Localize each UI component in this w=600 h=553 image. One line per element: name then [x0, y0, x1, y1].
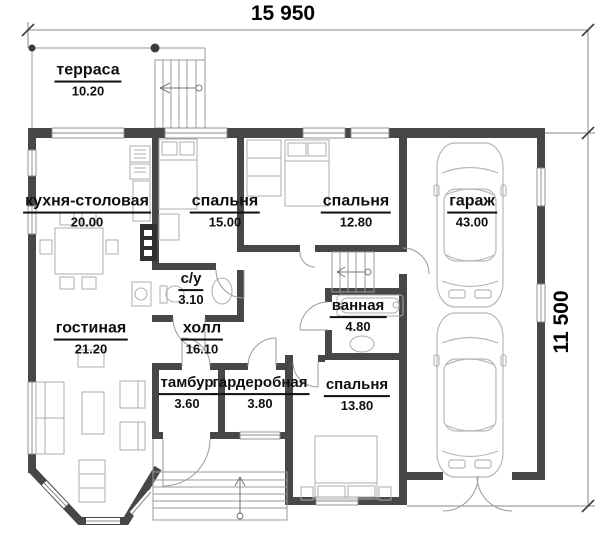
- hall-stairs-icon: [332, 252, 374, 292]
- room-area: 3.10: [178, 293, 203, 307]
- room-name: ванная: [330, 298, 387, 318]
- room-area: 21.20: [75, 342, 108, 356]
- bedroom-3-furniture: [301, 436, 391, 500]
- room-label-bathroom: ванная 4.80: [330, 298, 387, 334]
- room-area: 20.00: [71, 215, 104, 229]
- room-area: 3.60: [174, 397, 199, 411]
- room-name: спальня: [321, 193, 391, 214]
- room-area: 43.00: [456, 215, 489, 229]
- room-name: гардеробная: [211, 375, 310, 395]
- room-name: гостиная: [54, 320, 128, 341]
- room-area: 12.80: [340, 215, 373, 229]
- room-area: 15.00: [209, 215, 242, 229]
- room-label-vestibule: тамбур 3.60: [159, 375, 216, 411]
- room-label-kitchen-dining: кухня-столовая 20.00: [23, 193, 151, 230]
- room-label-terrace: терраса 10.20: [54, 62, 121, 99]
- room-name: холл: [181, 320, 223, 341]
- terrace-stairs-icon: [155, 60, 205, 128]
- room-name: терраса: [54, 62, 121, 83]
- room-label-bedroom-1: спальня 15.00: [190, 193, 260, 230]
- chimney: [140, 224, 157, 261]
- room-area: 16.10: [186, 342, 219, 356]
- room-label-wardrobe: гардеробная 3.80: [211, 375, 310, 411]
- room-label-wc: с/у 3.10: [178, 271, 203, 307]
- floor-plan: 15 950 11 500 терраса 10.20 кухня-столов…: [0, 0, 600, 553]
- living-room-furniture: [36, 350, 145, 502]
- room-area: 3.80: [247, 397, 272, 411]
- room-label-hall: холл 16.10: [181, 320, 223, 357]
- room-label-bedroom-3: спальня 13.80: [324, 377, 390, 413]
- dimension-height-label: 11 500: [550, 290, 574, 353]
- room-area: 10.20: [72, 84, 105, 98]
- room-name: спальня: [190, 193, 260, 214]
- room-label-garage: гараж 43.00: [447, 193, 497, 230]
- room-name: с/у: [179, 271, 204, 291]
- entrance-stairs-icon: [153, 439, 287, 520]
- room-name: спальня: [324, 377, 390, 397]
- dimension-width-label: 15 950: [251, 2, 315, 26]
- room-name: гараж: [447, 193, 497, 214]
- car-icon: [434, 313, 506, 477]
- room-area: 13.80: [341, 399, 374, 413]
- room-label-living-room: гостиная 21.20: [54, 320, 128, 357]
- room-label-bedroom-2: спальня 12.80: [321, 193, 391, 230]
- room-name: тамбур: [159, 375, 216, 395]
- room-name: кухня-столовая: [23, 193, 151, 214]
- room-area: 4.80: [345, 320, 370, 334]
